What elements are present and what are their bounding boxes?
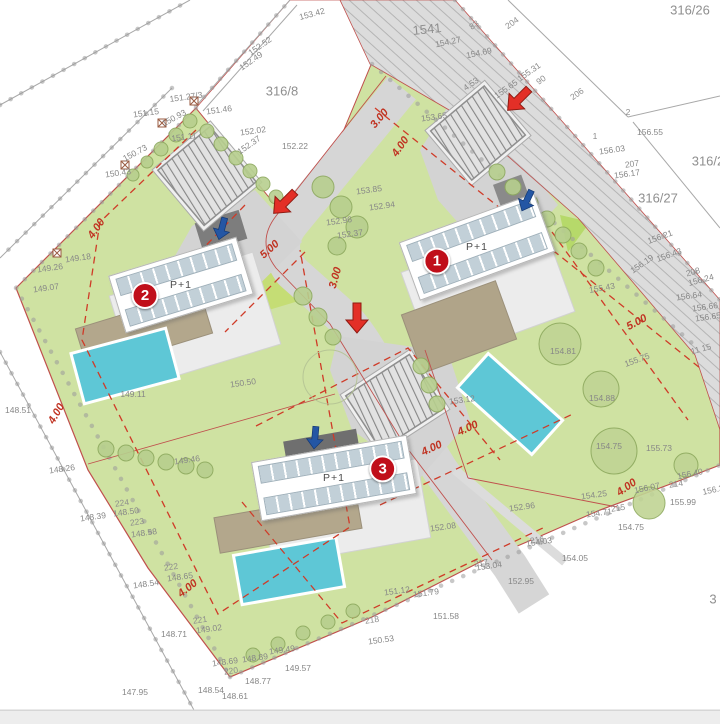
site-plan: P+1 2 P+1 1 P+1 3 153. bbox=[0, 0, 720, 724]
page-edge bbox=[0, 710, 720, 724]
floors-label: P+1 bbox=[323, 472, 345, 484]
house-number-badge: 2 bbox=[131, 282, 158, 309]
floors-label: P+1 bbox=[466, 241, 488, 253]
house-number-badge: 3 bbox=[369, 455, 396, 482]
floors-label: P+1 bbox=[170, 279, 192, 291]
house-number-badge: 1 bbox=[423, 248, 450, 275]
site-plan-drawing bbox=[0, 0, 720, 724]
